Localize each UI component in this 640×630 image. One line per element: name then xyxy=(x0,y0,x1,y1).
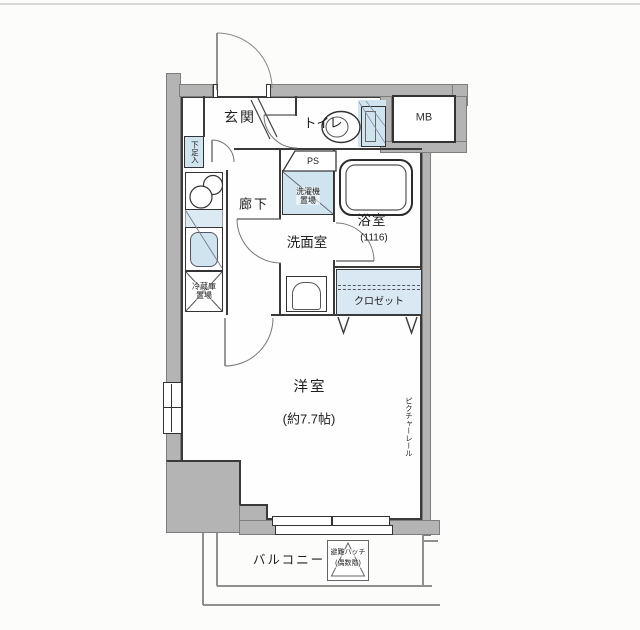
label-fridge-space: 冷蔵庫 置場 xyxy=(192,282,216,300)
label-washer-line2: 置場 xyxy=(300,196,316,205)
window-left-midline xyxy=(171,384,172,432)
counter-box xyxy=(185,210,223,227)
label-picture-rail: ピクチャーレール xyxy=(404,397,413,457)
label-bathroom-module: (1116) xyxy=(360,232,387,244)
closet-pole-dash-2 xyxy=(338,289,420,290)
label-bathroom: 浴室 xyxy=(358,213,387,229)
label-toilet: トイレ xyxy=(303,117,342,132)
page-top-divider xyxy=(0,3,640,5)
label-washer-line1: 洗濯機 xyxy=(296,187,320,196)
balcony-sliding-panel-2 xyxy=(275,525,393,535)
label-balcony: バルコニー xyxy=(253,553,325,567)
closet-pole-dash-1 xyxy=(338,285,420,286)
label-western-room: 洋室 xyxy=(294,380,327,397)
wall-top-left xyxy=(179,84,213,97)
label-hallway: 廊下 xyxy=(239,198,269,213)
label-fridge-line2: 置場 xyxy=(196,291,212,300)
genkan-left-line xyxy=(203,96,205,137)
label-meter-box: MB xyxy=(416,112,433,125)
kitchen-edge-line xyxy=(226,170,228,315)
balcony-sliding-tick xyxy=(331,517,333,525)
wall-bath-bottom xyxy=(333,266,422,268)
wall-washroom-left-upper xyxy=(279,150,281,219)
label-genkan: 玄関 xyxy=(224,109,256,125)
label-closet: クロゼット xyxy=(354,296,404,308)
balcony-outline xyxy=(203,533,440,605)
wall-right xyxy=(422,152,431,536)
sink-basin xyxy=(190,232,218,267)
label-washer-space: 洗濯機 置場 xyxy=(296,187,320,205)
label-escape-hatch-line2: (偶数階) xyxy=(335,560,361,568)
stove-box xyxy=(185,172,223,210)
wall-toilet-left xyxy=(295,96,297,116)
floorplan-page: { "page": { "background": "#fcfcfa", "di… xyxy=(0,0,640,630)
wall-mb-right xyxy=(455,96,467,145)
wall-bath-divider-lower xyxy=(333,260,335,316)
vanity-basin xyxy=(292,282,321,310)
window-left-tick xyxy=(164,407,181,408)
wall-below-toilet xyxy=(234,148,422,150)
wall-washroom-left-lower xyxy=(279,263,281,316)
entrance-jamb-left xyxy=(213,84,218,98)
wall-bottom-left-block xyxy=(166,460,241,533)
label-pipe-space: PS xyxy=(307,156,319,166)
label-washroom: 洗面室 xyxy=(287,235,328,251)
label-escape-hatch-line1: 避難ハッチ xyxy=(331,549,366,557)
toilet-tank-inner xyxy=(365,111,376,142)
label-shoe-cabinet: 下足入 xyxy=(190,141,199,164)
closet-box xyxy=(336,269,422,315)
entrance-jamb-right xyxy=(266,84,271,98)
entrance-door xyxy=(217,33,272,90)
window-left xyxy=(163,382,182,434)
label-fridge-line1: 冷蔵庫 xyxy=(192,282,216,291)
label-western-room-size: (約7.7帖) xyxy=(283,413,336,428)
